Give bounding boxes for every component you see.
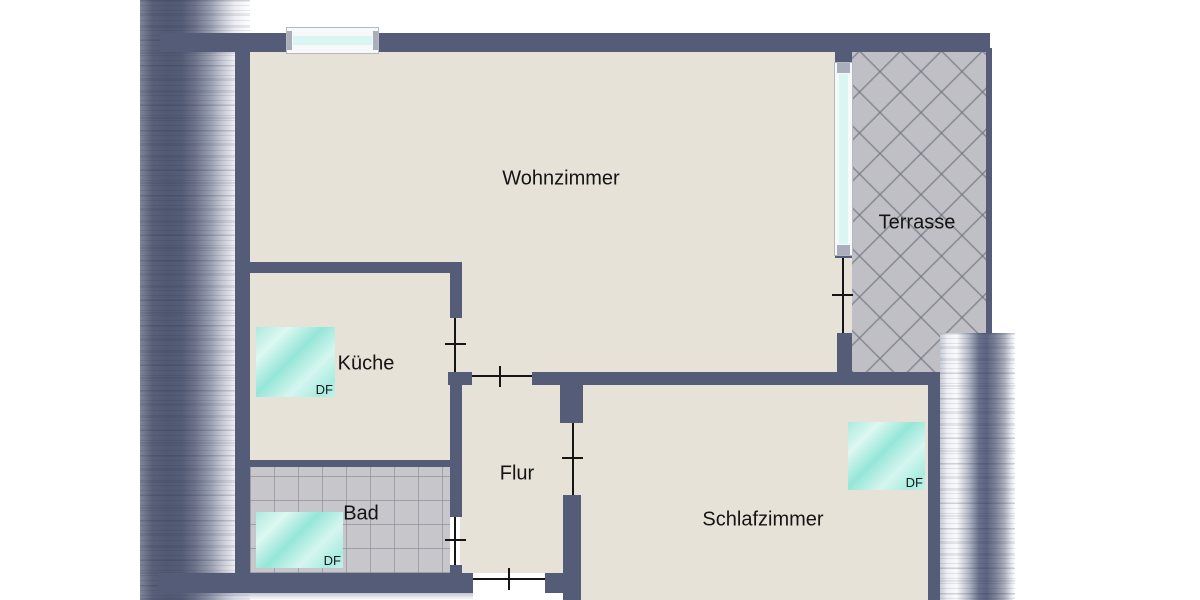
room-label-flur: Flur bbox=[500, 463, 534, 486]
skylight-label: DF bbox=[316, 383, 333, 396]
door-terrasse-tick bbox=[832, 294, 853, 296]
wall-flur-right-upper bbox=[560, 383, 583, 423]
wall-interior-left bbox=[235, 33, 250, 593]
wall-kueche-right-upper bbox=[450, 262, 462, 318]
window-cap-bottom bbox=[837, 245, 850, 255]
door-bad-tick bbox=[445, 539, 466, 541]
wall-schlafzimmer-right bbox=[928, 383, 940, 600]
door-wohnzimmer-flur-tick bbox=[499, 366, 501, 387]
room-label-bad: Bad bbox=[343, 503, 379, 526]
window-glass bbox=[839, 74, 848, 244]
floorplan-canvas: DF DF DF Wohnzimmer Küche Bad Flur Schla… bbox=[0, 0, 1200, 600]
skylight-label: DF bbox=[906, 476, 923, 489]
wall-kueche-top bbox=[235, 262, 460, 273]
room-label-kueche: Küche bbox=[338, 353, 395, 376]
wall-mid-horizontal bbox=[532, 372, 940, 385]
roof-slope-left-shading bbox=[140, 0, 250, 600]
wall-terrace-stub-low bbox=[837, 333, 852, 372]
door-entry-tick bbox=[508, 568, 510, 590]
door-flur-schlafzimmer-line bbox=[572, 423, 574, 495]
door-kueche-line bbox=[454, 318, 456, 372]
skylight-label: DF bbox=[324, 554, 341, 567]
window-cap-left bbox=[287, 31, 292, 50]
window-cap-top bbox=[837, 63, 850, 73]
wall-terrace-stub-top bbox=[835, 48, 852, 62]
wall-terrace-right-edge bbox=[986, 48, 992, 333]
wall-bottom-shadow bbox=[158, 593, 473, 600]
window-top-wohnzimmer bbox=[286, 27, 379, 54]
room-label-schlafzimmer: Schlafzimmer bbox=[702, 509, 823, 532]
wall-exterior-bottom-left bbox=[158, 573, 473, 593]
room-floor-schlafzimmer bbox=[564, 383, 940, 600]
skylight-bad: DF bbox=[256, 512, 343, 568]
wall-bad-top bbox=[235, 460, 460, 467]
skylight-kueche: DF bbox=[256, 327, 335, 397]
window-glass bbox=[293, 36, 372, 45]
window-terrasse-wohnzimmer bbox=[834, 62, 853, 256]
window-cap-right bbox=[373, 31, 378, 50]
skylight-schlafzimmer: DF bbox=[848, 422, 925, 490]
wall-kueche-right-lower bbox=[450, 372, 462, 517]
room-label-wohnzimmer: Wohnzimmer bbox=[502, 168, 619, 191]
wall-flur-top-left-block bbox=[448, 372, 472, 385]
room-label-terrasse: Terrasse bbox=[879, 212, 956, 235]
wall-exterior-bottom-mid bbox=[545, 573, 580, 593]
door-kueche-tick bbox=[445, 343, 466, 345]
door-flur-schlafzimmer-tick bbox=[562, 457, 583, 459]
roof-slope-right-shading bbox=[940, 333, 1015, 600]
wall-exterior-top bbox=[160, 33, 990, 52]
door-bad-line bbox=[454, 517, 456, 565]
door-wohnzimmer-flur-line bbox=[472, 375, 532, 377]
